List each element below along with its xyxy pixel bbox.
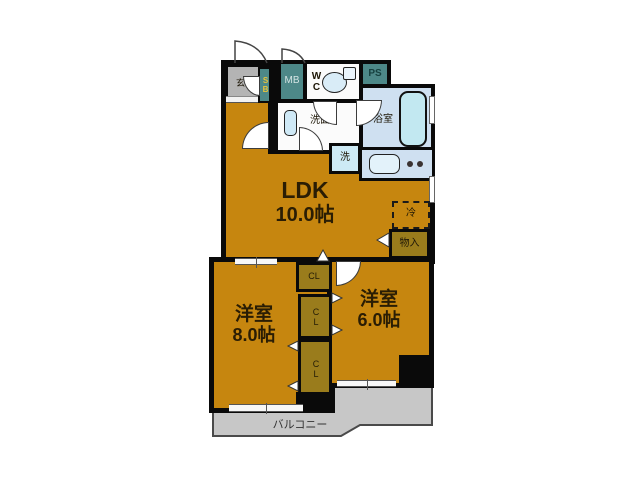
window-marker xyxy=(429,176,435,203)
stove-burner-dot xyxy=(407,161,413,167)
western-room-right-size: 6.0帖 xyxy=(330,310,428,330)
wall-column xyxy=(399,355,434,387)
kitchen-counter xyxy=(359,147,435,181)
western-room-right-label: 洋室 6.0帖 xyxy=(330,289,428,330)
western-room-right-name: 洋室 xyxy=(330,289,428,310)
closet-bottom-label: CL xyxy=(310,349,321,389)
bathtub-icon xyxy=(399,91,427,147)
western-room-left-label: 洋室 8.0帖 xyxy=(210,304,298,345)
ldk-label: LDK 10.0帖 xyxy=(243,178,367,226)
pipe-space-label: PS xyxy=(363,68,387,79)
entrance-door-arc xyxy=(234,40,268,64)
refrigerator-label: 冷 xyxy=(394,208,428,219)
ldk-name: LDK xyxy=(243,178,367,204)
closet-middle: CL xyxy=(298,294,332,339)
ldk-size: 10.0帖 xyxy=(243,204,367,226)
window-marker xyxy=(429,96,435,124)
sliding-door-marker xyxy=(235,258,277,265)
storage: 物入 xyxy=(389,229,430,259)
balcony-label: バルコニー xyxy=(240,419,360,431)
kitchen-sink-icon xyxy=(369,154,400,174)
room-toilet: WC xyxy=(303,60,363,103)
closet-bottom: CL xyxy=(298,339,332,395)
building-outline-step xyxy=(391,55,440,84)
meter-box-label: MB xyxy=(281,75,303,86)
sliding-door-marker xyxy=(229,404,303,412)
stove-burner-dot xyxy=(417,161,423,167)
closet-top: CL xyxy=(296,262,332,292)
western-room-left-size: 8.0帖 xyxy=(210,325,298,345)
western-room-left-name: 洋室 xyxy=(210,304,298,325)
washing-machine-label: 洗 xyxy=(332,152,358,163)
toilet-label: WC xyxy=(310,66,322,98)
refrigerator-space: 冷 xyxy=(392,201,430,229)
shoe-box-label: SB xyxy=(260,70,269,100)
meter-box-door-arc xyxy=(281,48,306,64)
closet-middle-label: CL xyxy=(310,299,321,335)
washing-machine: 洗 xyxy=(329,143,361,174)
floor-plan: 玄関 SB MB WC PS 浴室 洗面 洗 冷 xyxy=(0,0,640,480)
storage-label: 物入 xyxy=(392,238,427,249)
closet-top-label: CL xyxy=(299,271,329,281)
sliding-window-marker xyxy=(337,380,396,387)
toilet-tank-icon xyxy=(343,67,356,80)
washbasin-icon xyxy=(284,110,297,136)
